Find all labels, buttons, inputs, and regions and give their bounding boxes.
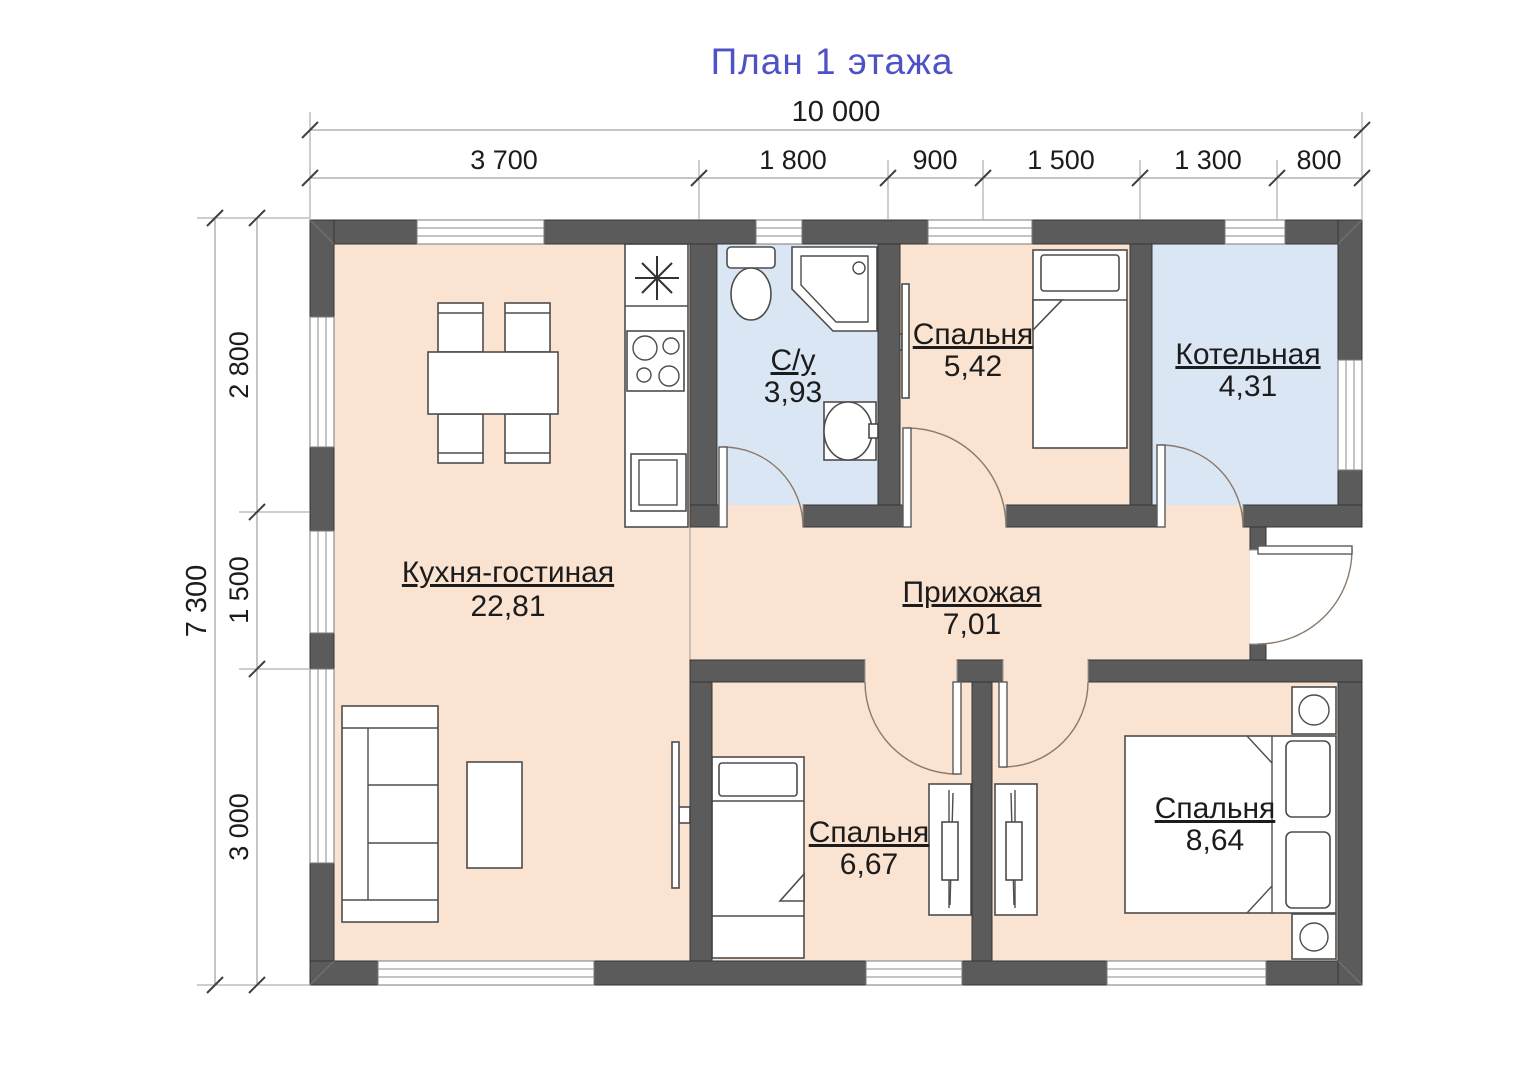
cooktop <box>627 331 684 391</box>
dim-segment: 800 <box>1296 145 1341 175</box>
window <box>310 317 334 447</box>
floor-plan-page: 10 000 3 700 1 800 900 1 500 1 300 800 7… <box>0 0 1526 1080</box>
sofa <box>342 706 438 922</box>
room-name-hallway: Прихожая <box>902 576 1041 609</box>
dim-segment: 1 800 <box>759 145 827 175</box>
wall-bedroom-boiler <box>1130 244 1152 505</box>
wall-hall-top-3 <box>1006 505 1161 527</box>
dim-segment: 1 500 <box>224 556 254 624</box>
wall-living-bedroom-small <box>690 682 712 961</box>
dining-chair <box>505 414 550 463</box>
single-bed <box>1033 250 1127 448</box>
entrance-door <box>1258 546 1352 644</box>
wall-hall-bottom-2 <box>957 660 1003 682</box>
dim-segment: 2 800 <box>224 331 254 399</box>
floor-plan-drawing: 10 000 3 700 1 800 900 1 500 1 300 800 7… <box>0 0 1526 1080</box>
room-area-bedroom-master: 8,64 <box>1186 824 1244 857</box>
toilet-icon <box>727 247 775 320</box>
room-area-boiler: 4,31 <box>1219 370 1277 403</box>
dim-total-width: 10 000 <box>792 96 881 128</box>
window <box>378 961 594 985</box>
room-name-kitchen-living: Кухня-гостиная <box>402 556 614 589</box>
wall-hall-top-1 <box>690 505 723 527</box>
nightstand <box>1292 687 1336 734</box>
window <box>1225 220 1285 244</box>
window <box>756 220 802 244</box>
wardrobe <box>995 784 1037 915</box>
wall-hall-bottom-1 <box>690 660 865 682</box>
page-title: План 1 этажа <box>711 41 954 82</box>
window <box>928 220 1032 244</box>
room-area-bedroom-top: 5,42 <box>944 350 1002 383</box>
wash-basin-icon <box>824 402 878 460</box>
wardrobe <box>929 784 971 915</box>
dim-segment: 3 700 <box>470 145 538 175</box>
room-area-bathroom: 3,93 <box>764 376 822 409</box>
room-name-boiler: Котельная <box>1175 338 1320 371</box>
dim-segment: 3 000 <box>224 793 254 861</box>
dim-total-height: 7 300 <box>181 565 213 638</box>
wall-exterior-right-bottom <box>1338 660 1362 985</box>
wall-hall-top-2 <box>803 505 907 527</box>
dim-segment: 1 300 <box>1174 145 1242 175</box>
opening-boiler <box>1161 505 1243 527</box>
room-name-bedroom-top: Спальня <box>913 318 1034 351</box>
wall-bedrooms-divider <box>972 682 992 961</box>
dining-table <box>428 352 558 414</box>
wall-kitchen-bathroom <box>690 244 717 505</box>
room-area-hallway: 7,01 <box>943 608 1001 641</box>
dining-chair <box>438 414 483 463</box>
window <box>866 961 962 985</box>
opening-bedroom-small <box>865 660 957 682</box>
window <box>417 220 544 244</box>
room-area-kitchen-living: 22,81 <box>470 590 545 623</box>
room-area-bedroom-small: 6,67 <box>840 848 898 881</box>
wall-entrance-stub-bottom <box>1250 644 1266 660</box>
wall-bathroom-bedroom <box>878 244 900 505</box>
wall-hall-bottom-3 <box>1088 660 1362 682</box>
window <box>1338 360 1362 470</box>
single-bed <box>712 757 804 958</box>
wall-hall-top-4 <box>1243 505 1362 527</box>
window <box>310 531 334 633</box>
dim-segment: 900 <box>912 145 957 175</box>
dim-segment: 1 500 <box>1027 145 1095 175</box>
dining-chair <box>505 303 550 352</box>
nightstand <box>1292 914 1336 959</box>
dining-chair <box>438 303 483 352</box>
room-name-bedroom-small: Спальня <box>809 816 930 849</box>
kitchen-sink-unit <box>631 454 686 511</box>
opening-bedroom-master <box>1003 660 1088 682</box>
opening-bathroom <box>723 505 803 527</box>
room-name-bedroom-master: Спальня <box>1155 792 1276 825</box>
window <box>310 669 334 863</box>
opening-bedroom-top <box>907 505 1006 527</box>
window <box>1107 961 1266 985</box>
coffee-table <box>467 762 522 868</box>
room-name-bathroom: С/у <box>771 344 816 377</box>
